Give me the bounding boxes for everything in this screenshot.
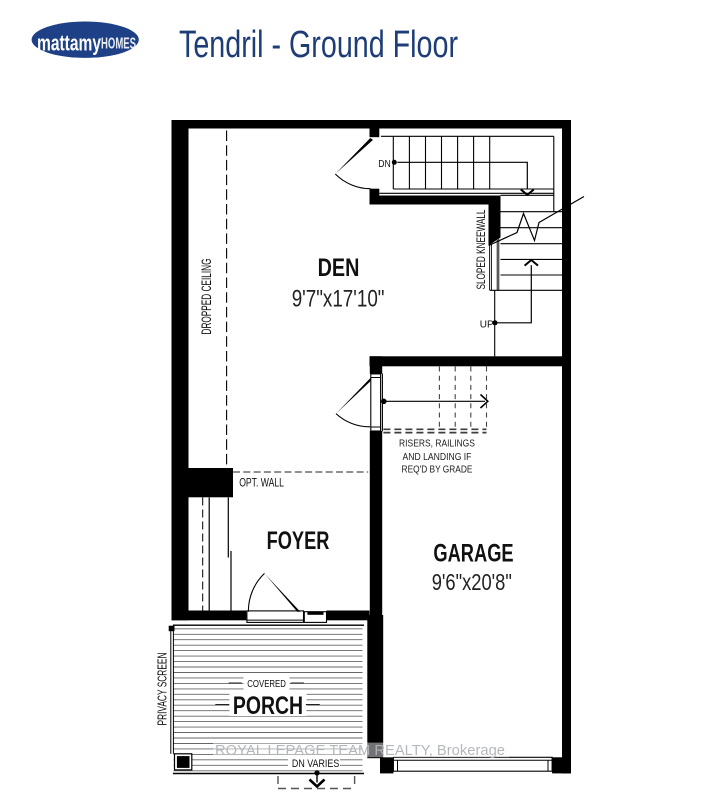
svg-text:9'6"x20'8": 9'6"x20'8" (432, 569, 512, 595)
svg-text:PRIVACY SCREEN: PRIVACY SCREEN (154, 653, 169, 726)
svg-text:COVERED: COVERED (247, 678, 286, 690)
svg-text:DROPPED CEILING: DROPPED CEILING (199, 259, 214, 335)
svg-text:mattamy: mattamy (37, 31, 102, 56)
svg-text:Tendril - Ground Floor: Tendril - Ground Floor (179, 24, 458, 66)
svg-text:AND LANDING IF: AND LANDING IF (403, 452, 472, 463)
svg-text:PORCH: PORCH (233, 692, 303, 720)
svg-text:ROYAL LEPAGE TEAM REALTY, Brok: ROYAL LEPAGE TEAM REALTY, Brokerage (215, 742, 505, 759)
svg-text:GARAGE: GARAGE (433, 540, 513, 568)
svg-text:SLOPED KNEEWALL: SLOPED KNEEWALL (474, 209, 488, 289)
svg-text:OPT. WALL: OPT. WALL (239, 477, 284, 489)
svg-text:DN: DN (378, 158, 391, 170)
svg-text:REQ'D BY GRADE: REQ'D BY GRADE (402, 465, 473, 476)
svg-text:9'7"x17'10": 9'7"x17'10" (292, 286, 385, 313)
svg-text:HOMES: HOMES (101, 36, 136, 53)
svg-text:DEN: DEN (318, 254, 360, 282)
svg-text:DN VARIES: DN VARIES (292, 758, 339, 770)
svg-text:RISERS, RAILINGS: RISERS, RAILINGS (399, 439, 475, 450)
svg-text:UP: UP (480, 318, 494, 330)
svg-text:FOYER: FOYER (267, 527, 330, 555)
